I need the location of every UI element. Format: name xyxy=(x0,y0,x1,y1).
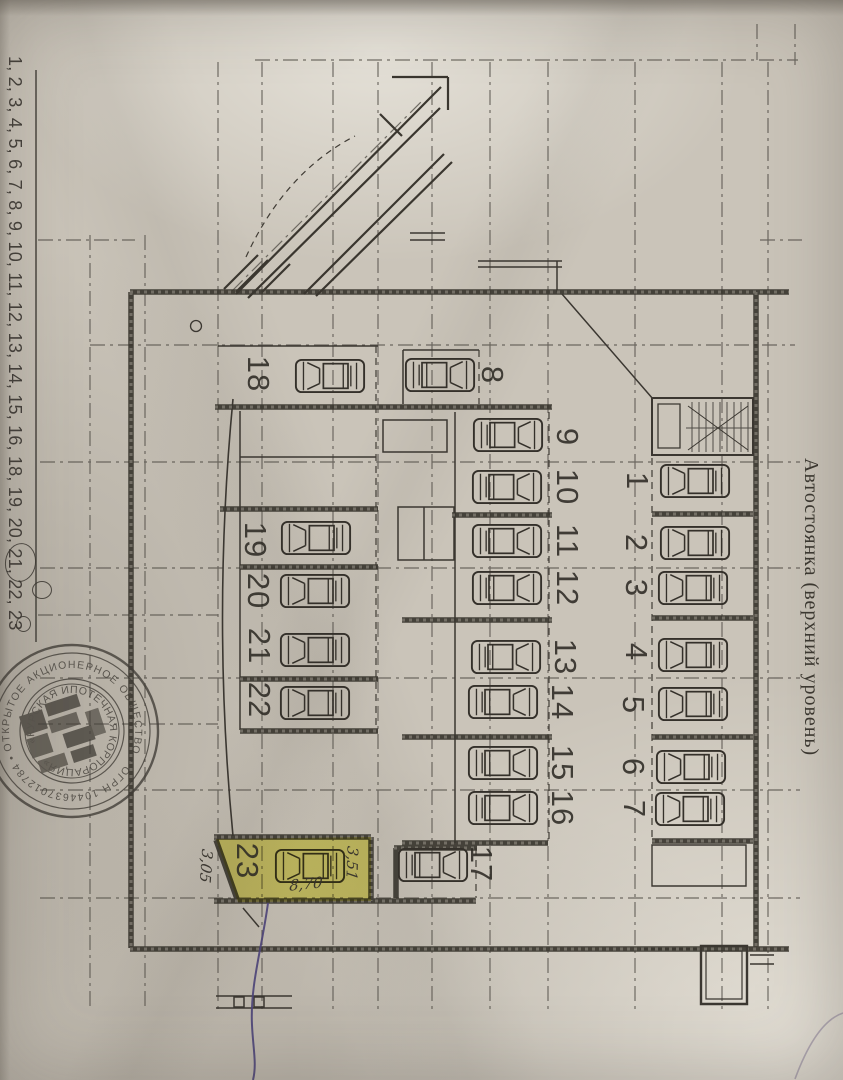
handwritten-dimension-left: 3,05 xyxy=(196,848,216,884)
car-icon xyxy=(472,641,540,673)
car-icon xyxy=(469,792,537,824)
car-icon xyxy=(469,747,537,779)
car-icon xyxy=(406,359,474,391)
stall-number-6: 6 xyxy=(615,758,651,776)
car-icon xyxy=(296,360,364,392)
car-icon xyxy=(474,419,542,451)
stall-number-1: 1 xyxy=(619,472,655,490)
stall-number-7: 7 xyxy=(616,800,652,818)
stall-mouth-dashes xyxy=(246,136,652,898)
stall-number-22: 22 xyxy=(241,682,277,718)
pen-circle-mark xyxy=(16,616,31,632)
handwritten-dimension-width: 3,51 xyxy=(342,845,361,881)
stall-number-10: 10 xyxy=(549,469,585,505)
stall-number-13: 13 xyxy=(547,639,583,675)
pen-scribble-corner xyxy=(795,1013,843,1079)
stall-number-14: 14 xyxy=(544,684,580,720)
stall-number-19: 19 xyxy=(237,522,273,558)
car-icon xyxy=(661,465,729,497)
car-icon xyxy=(659,688,727,720)
stall-number-4: 4 xyxy=(618,643,654,661)
car-icon xyxy=(473,525,541,557)
stall-number-11: 11 xyxy=(549,524,585,558)
car-icon xyxy=(473,471,541,503)
scanned-parking-plan-page: ОТКРЫТОЕ АКЦИОНЕРНОЕ ОБЩЕСТВО • ОГРН 104… xyxy=(0,0,843,1080)
car-icon xyxy=(661,527,729,559)
stall-number-9: 9 xyxy=(549,428,585,446)
car-icon xyxy=(473,572,541,604)
car-icon xyxy=(399,849,467,881)
svg-text:«КУРСКАЯ ИПОТЕЧНАЯ КОРПОРАЦИЯ»: «КУРСКАЯ ИПОТЕЧНАЯ КОРПОРАЦИЯ» xyxy=(13,672,132,791)
handwritten-dimension-length: 8,70 xyxy=(289,873,323,895)
pen-circle-mark xyxy=(32,581,52,599)
car-icon xyxy=(281,687,349,719)
car-icon xyxy=(281,634,349,666)
stall-number-17: 17 xyxy=(463,846,499,882)
round-stamp: ОТКРЫТОЕ АКЦИОНЕРНОЕ ОБЩЕСТВО • ОГРН 104… xyxy=(0,623,180,840)
stall-number-5: 5 xyxy=(615,696,651,714)
car-icon xyxy=(282,522,350,554)
car-icon xyxy=(656,793,724,825)
stall-number-23: 23 xyxy=(229,843,265,879)
pen-stroke xyxy=(252,903,268,1080)
drawing-title: Автостоянка (верхний уровень) xyxy=(799,458,822,803)
car-icon xyxy=(659,572,727,604)
stairwell xyxy=(652,398,753,455)
floor-plan-drawing: ОТКРЫТОЕ АКЦИОНЕРНОЕ ОБЩЕСТВО • ОГРН 104… xyxy=(0,0,843,1080)
stall-number-18: 18 xyxy=(240,356,276,392)
stall-number-2: 2 xyxy=(618,534,654,552)
car-icon xyxy=(659,639,727,671)
car-icon xyxy=(469,686,537,718)
stall-number-8: 8 xyxy=(474,366,510,384)
stall-number-3: 3 xyxy=(618,579,654,597)
stamp-inner-text: «КУРСКАЯ ИПОТЕЧНАЯ КОРПОРАЦИЯ» xyxy=(13,672,132,791)
stall-number-15: 15 xyxy=(544,745,580,781)
stall-number-12: 12 xyxy=(549,570,585,606)
stall-number-20: 20 xyxy=(240,573,276,609)
stall-number-21: 21 xyxy=(241,628,277,664)
elevator-shaft xyxy=(701,946,747,1004)
car-icon xyxy=(281,575,349,607)
stall-number-16: 16 xyxy=(544,790,580,826)
car-icon xyxy=(657,751,725,783)
